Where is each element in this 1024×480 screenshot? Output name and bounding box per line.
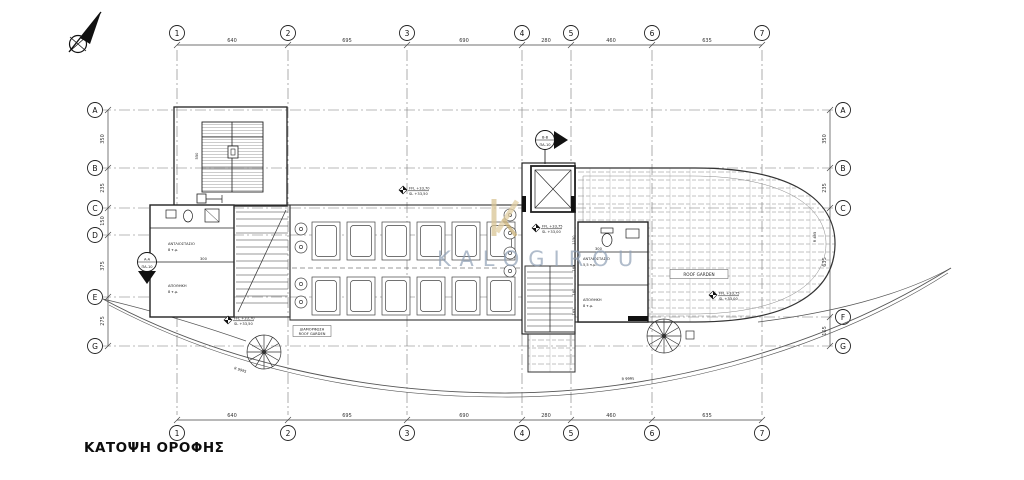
- level-marker-1: FFL +33,70 SL +33,50: [399, 186, 430, 196]
- level-3-sl: SL +33,50: [234, 322, 253, 326]
- grid-col-bubbles-top: [170, 26, 770, 41]
- row-bubble-B-left: B: [92, 164, 97, 173]
- section-aa-name: A-A: [144, 258, 151, 262]
- page-title: ΚΑΤΟΨΗ ΟΡΟΦΗΣ: [84, 440, 224, 456]
- col-bubble-7-top: 7: [760, 29, 765, 38]
- row-bubble-E-left: E: [93, 293, 98, 302]
- grid-col-bubbles-bottom: [170, 426, 770, 441]
- dim-top-2: 695: [342, 38, 352, 44]
- dim-top-5: 460: [606, 38, 616, 44]
- core-lower-shaft: [528, 334, 575, 372]
- col-bubble-6-top: 6: [650, 29, 655, 38]
- col-bubble-1-bottom: 1: [175, 429, 180, 438]
- curve-radius-label-2: R 9995: [622, 377, 635, 381]
- right-dim-165b: 165: [572, 309, 576, 316]
- left-pump-name: ΑΝΤΛΙΟΣΤΑΣΙΟ: [168, 242, 195, 246]
- row-bubble-A-right: A: [840, 106, 846, 115]
- row-bubble-A-left: A: [92, 106, 98, 115]
- col-bubble-5-top: 5: [569, 29, 574, 38]
- dim-left-1: 350: [100, 134, 106, 144]
- row-bubble-D-left: D: [92, 231, 98, 240]
- skylight-dim: 550: [195, 152, 199, 160]
- dim-left-3: 150: [100, 216, 106, 226]
- row-bubble-B-right: B: [840, 164, 845, 173]
- spiral-stair-left: [247, 335, 281, 369]
- dim-left-5: 275: [100, 316, 106, 326]
- dim-bottom-1: 640: [227, 413, 237, 419]
- watermark-text: KALOGIROU: [437, 247, 642, 271]
- level-1-sl: SL +33,50: [409, 192, 428, 196]
- section-aa-ref: ΠΑ-10: [141, 265, 153, 269]
- right-dim-160: 160: [572, 288, 576, 296]
- dim-bottom-3: 690: [459, 413, 469, 419]
- col-bubble-2-top: 2: [286, 29, 291, 38]
- row-bubble-F-right: F: [841, 313, 845, 322]
- dim-right-2: 235: [822, 183, 828, 193]
- col-bubble-4-top: 4: [520, 29, 525, 38]
- dim-top-1: 640: [227, 38, 237, 44]
- roof-garden-label: ROOF GARDEN: [683, 272, 714, 277]
- left-annex-dim: 300: [200, 257, 208, 261]
- section-bb-ref: ΠΑ-10: [539, 143, 551, 147]
- dim-right-1: 350: [822, 134, 828, 144]
- right-store-name: ΑΠΟΘΗΚΗ: [583, 298, 602, 302]
- left-store-name: ΑΠΟΘΗΚΗ: [168, 284, 187, 288]
- left-store-area: 8 τ.μ.: [168, 290, 178, 294]
- left-staircase: [234, 205, 290, 317]
- col-bubble-1-top: 1: [175, 29, 180, 38]
- dim-top-3: 690: [459, 38, 469, 44]
- dim-top-6: 635: [702, 38, 712, 44]
- row-bubble-G-right: G: [840, 342, 846, 351]
- note-line-2: ROOF GARDEN: [299, 332, 326, 336]
- dim-bottom-2: 695: [342, 413, 352, 419]
- note-line-1: ΔΙΑΜΟΡΦΩΣΗ: [300, 327, 325, 331]
- level-2-ffl: FFL +33,75: [542, 225, 563, 229]
- section-marker-bb: B-B ΠΑ-10: [536, 131, 569, 165]
- wing-radius-label: R 495: [813, 232, 817, 243]
- left-pump-area: 8 τ.μ.: [168, 248, 178, 252]
- level-2-sl: SL +33,00: [542, 230, 561, 234]
- right-dim-1150: 1150: [572, 235, 576, 245]
- dim-bottom-5: 460: [606, 413, 616, 419]
- top-left-block: [174, 107, 287, 206]
- north-arrow-icon: [69, 12, 101, 53]
- dim-bottom-6: 635: [702, 413, 712, 419]
- level-1-ffl: FFL +33,70: [409, 187, 430, 191]
- row-bubble-G-left: G: [92, 342, 98, 351]
- dim-top-4: 280: [541, 38, 551, 44]
- col-bubble-4-bottom: 4: [520, 429, 525, 438]
- col-bubble-3-bottom: 3: [405, 429, 410, 438]
- floor-plan-sheet: 1 2 3 4 5 6 7 640 695 690 280 460 635 1 …: [0, 0, 1024, 480]
- sun-loungers-row-2: [312, 277, 515, 315]
- left-annex: [150, 205, 234, 317]
- right-store-area: 8 τ.μ.: [583, 304, 593, 308]
- dim-left-4: 375: [100, 261, 106, 271]
- section-bb-name: B-B: [542, 136, 549, 140]
- floor-plan-drawing: 1 2 3 4 5 6 7 640 695 690 280 460 635 1 …: [0, 0, 1024, 480]
- col-bubble-2-bottom: 2: [286, 429, 291, 438]
- dim-left-2: 235: [100, 183, 106, 193]
- col-bubble-6-bottom: 6: [650, 429, 655, 438]
- row-bubble-C-left: C: [92, 204, 97, 213]
- curve-radius-label-1: R 9995: [234, 366, 247, 374]
- dim-bottom-4: 280: [541, 413, 551, 419]
- col-bubble-7-bottom: 7: [760, 429, 765, 438]
- level-4-sl: SL +33,00: [719, 297, 738, 301]
- level-marker-3: FFL +33,70 SL +33,50: [224, 316, 255, 326]
- row-bubble-C-right: C: [840, 204, 845, 213]
- roof-garden-note-box: ΔΙΑΜΟΡΦΩΣΗ ROOF GARDEN: [293, 326, 331, 337]
- col-bubble-5-bottom: 5: [569, 429, 574, 438]
- level-3-ffl: FFL +33,70: [234, 317, 255, 321]
- col-bubble-3-top: 3: [405, 29, 410, 38]
- level-4-ffl: FFL +33,75: [719, 292, 740, 296]
